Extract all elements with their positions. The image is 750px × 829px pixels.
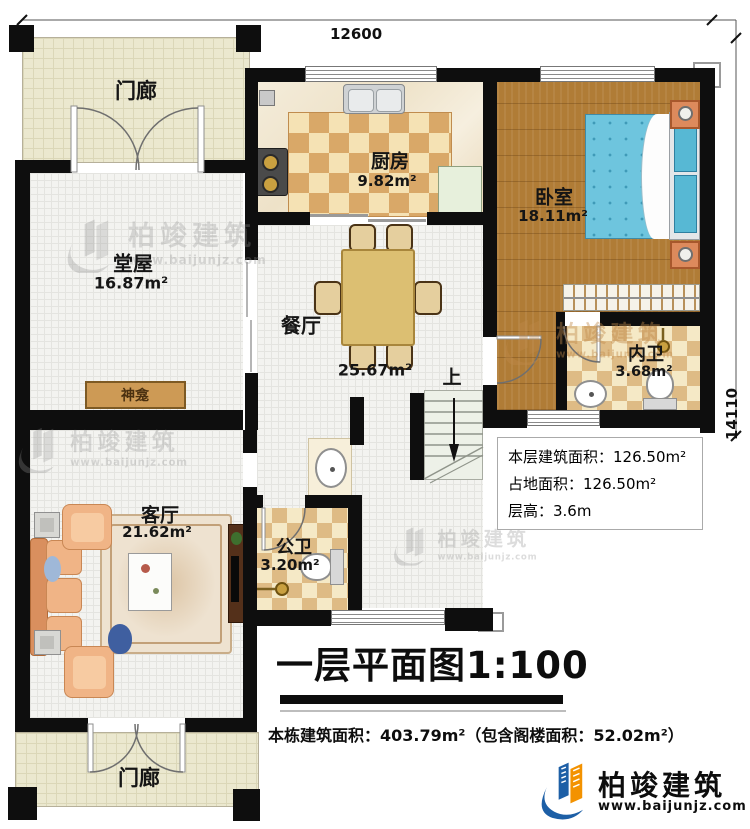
tv-cabinet	[228, 524, 244, 623]
wall	[600, 312, 715, 326]
column	[233, 789, 260, 821]
dining-chair	[386, 224, 413, 252]
wall	[243, 430, 257, 453]
info-box: 本层建筑面积：126.50m² 占地面积：126.50m² 层高：3.6m	[497, 437, 703, 530]
armchair-seat	[73, 656, 106, 689]
bed-headboard	[669, 112, 700, 240]
coffee-table	[128, 553, 172, 611]
wall	[410, 393, 424, 480]
side-table	[34, 512, 60, 538]
wall	[243, 610, 331, 626]
bed-blanket	[641, 114, 670, 239]
title-underline-thin	[280, 710, 566, 712]
sofa-cushion	[46, 578, 82, 613]
dimension-height: 14110	[723, 384, 741, 444]
brand-logo-icon	[536, 756, 594, 820]
lamp-icon	[678, 106, 693, 121]
total-area-note: 本栋建筑面积：403.79m²（包含阁楼面积：52.02m²）	[268, 722, 684, 746]
wardrobe-hangers	[563, 284, 700, 311]
sink-symbol	[315, 448, 347, 488]
wall	[483, 82, 497, 337]
wall	[203, 160, 248, 173]
hall-area: 16.87m²	[94, 274, 168, 293]
dining-chair	[349, 224, 376, 252]
nightstand	[670, 100, 700, 129]
armchair-seat	[71, 513, 104, 542]
sliding-door-mark	[310, 214, 368, 217]
wall	[350, 397, 364, 445]
public-bath-area: 3.20m²	[260, 556, 319, 574]
page-title: 一层平面图1:100	[276, 635, 589, 689]
opening-mark	[246, 262, 248, 317]
burner	[262, 154, 279, 171]
armchair	[64, 646, 114, 698]
living-area: 21.62m²	[122, 523, 192, 541]
brand-url: www.baijunjz.com	[598, 799, 747, 814]
bedroom-label: 卧室	[535, 183, 573, 210]
window	[540, 66, 655, 82]
column	[9, 25, 34, 52]
wall	[600, 410, 715, 428]
tv-icon	[231, 556, 239, 602]
nightstand	[670, 241, 700, 269]
bedroom-entry-floor	[497, 312, 556, 410]
drain-dot	[589, 392, 594, 397]
wall	[245, 82, 258, 260]
porch-bottom-label: 门廊	[118, 762, 160, 792]
wall	[348, 495, 362, 612]
kitchen-label: 厨房	[371, 147, 409, 174]
opening-mark	[250, 320, 252, 372]
shower-head-symbol	[275, 582, 289, 596]
brand-name: 柏竣建筑	[598, 764, 726, 804]
window	[331, 610, 445, 625]
drain-dot	[330, 467, 335, 472]
floor-plan: 柏竣建筑 www.baijunjz.com 柏竣建筑 www.baijunjz.…	[0, 0, 750, 829]
figure-decor	[44, 556, 61, 582]
wall	[245, 68, 305, 82]
wall	[483, 385, 497, 410]
wall	[257, 495, 263, 508]
wardrobe-rail	[564, 297, 699, 299]
wall	[30, 160, 72, 173]
column	[236, 25, 261, 52]
dining-table	[341, 249, 415, 346]
table-decor	[153, 588, 159, 594]
dimension-width: 12600	[330, 25, 382, 43]
title-underline	[280, 695, 563, 704]
headboard-panel	[674, 175, 697, 233]
plant-icon	[231, 532, 242, 545]
ensuite-area: 3.68m²	[615, 364, 672, 380]
wall	[15, 160, 30, 732]
flue-vent	[259, 90, 275, 106]
wall	[245, 212, 310, 225]
window	[305, 66, 437, 82]
wall	[556, 326, 567, 410]
wall	[483, 410, 527, 428]
armchair	[62, 504, 112, 550]
info-floor-area: 本层建筑面积：126.50m²	[508, 446, 686, 467]
dining-area: 25.67m²	[338, 361, 412, 380]
kitchen-sink	[343, 84, 405, 114]
figure-decor	[108, 624, 132, 654]
info-footprint-area: 占地面积：126.50m²	[508, 473, 656, 494]
column	[8, 787, 37, 820]
porch-top-label: 门廊	[115, 75, 157, 105]
wall	[445, 608, 493, 631]
window	[527, 410, 600, 426]
dining-label: 餐厅	[281, 310, 321, 339]
wall	[185, 718, 257, 732]
info-floor-height: 层高：3.6m	[508, 500, 591, 521]
sliding-door-mark	[368, 219, 426, 222]
stairs-up-label: 上	[442, 363, 461, 390]
wall	[15, 718, 88, 732]
fridge	[438, 166, 482, 214]
side-table-top	[40, 636, 54, 649]
wall	[556, 312, 565, 326]
sink-symbol	[574, 380, 607, 408]
toilet-tank	[330, 549, 344, 585]
side-table	[34, 630, 61, 655]
table-decor	[141, 564, 150, 573]
burner	[262, 176, 279, 193]
lamp-icon	[678, 247, 693, 262]
toilet-tank	[643, 398, 677, 410]
kitchen-area: 9.82m²	[357, 172, 416, 190]
sink-basin	[348, 89, 374, 112]
wall	[30, 410, 243, 430]
sink-basin	[376, 89, 402, 112]
wall	[700, 68, 715, 433]
wall	[245, 373, 258, 430]
bedroom-area: 18.11m²	[518, 207, 588, 225]
shrine-label: 神龛	[121, 385, 149, 405]
wall	[437, 68, 540, 82]
ensuite-label: 内卫	[628, 340, 664, 366]
hall-label: 堂屋	[113, 248, 153, 277]
side-table-top	[40, 518, 54, 532]
stairs-area	[424, 390, 483, 480]
dining-chair	[414, 281, 442, 315]
